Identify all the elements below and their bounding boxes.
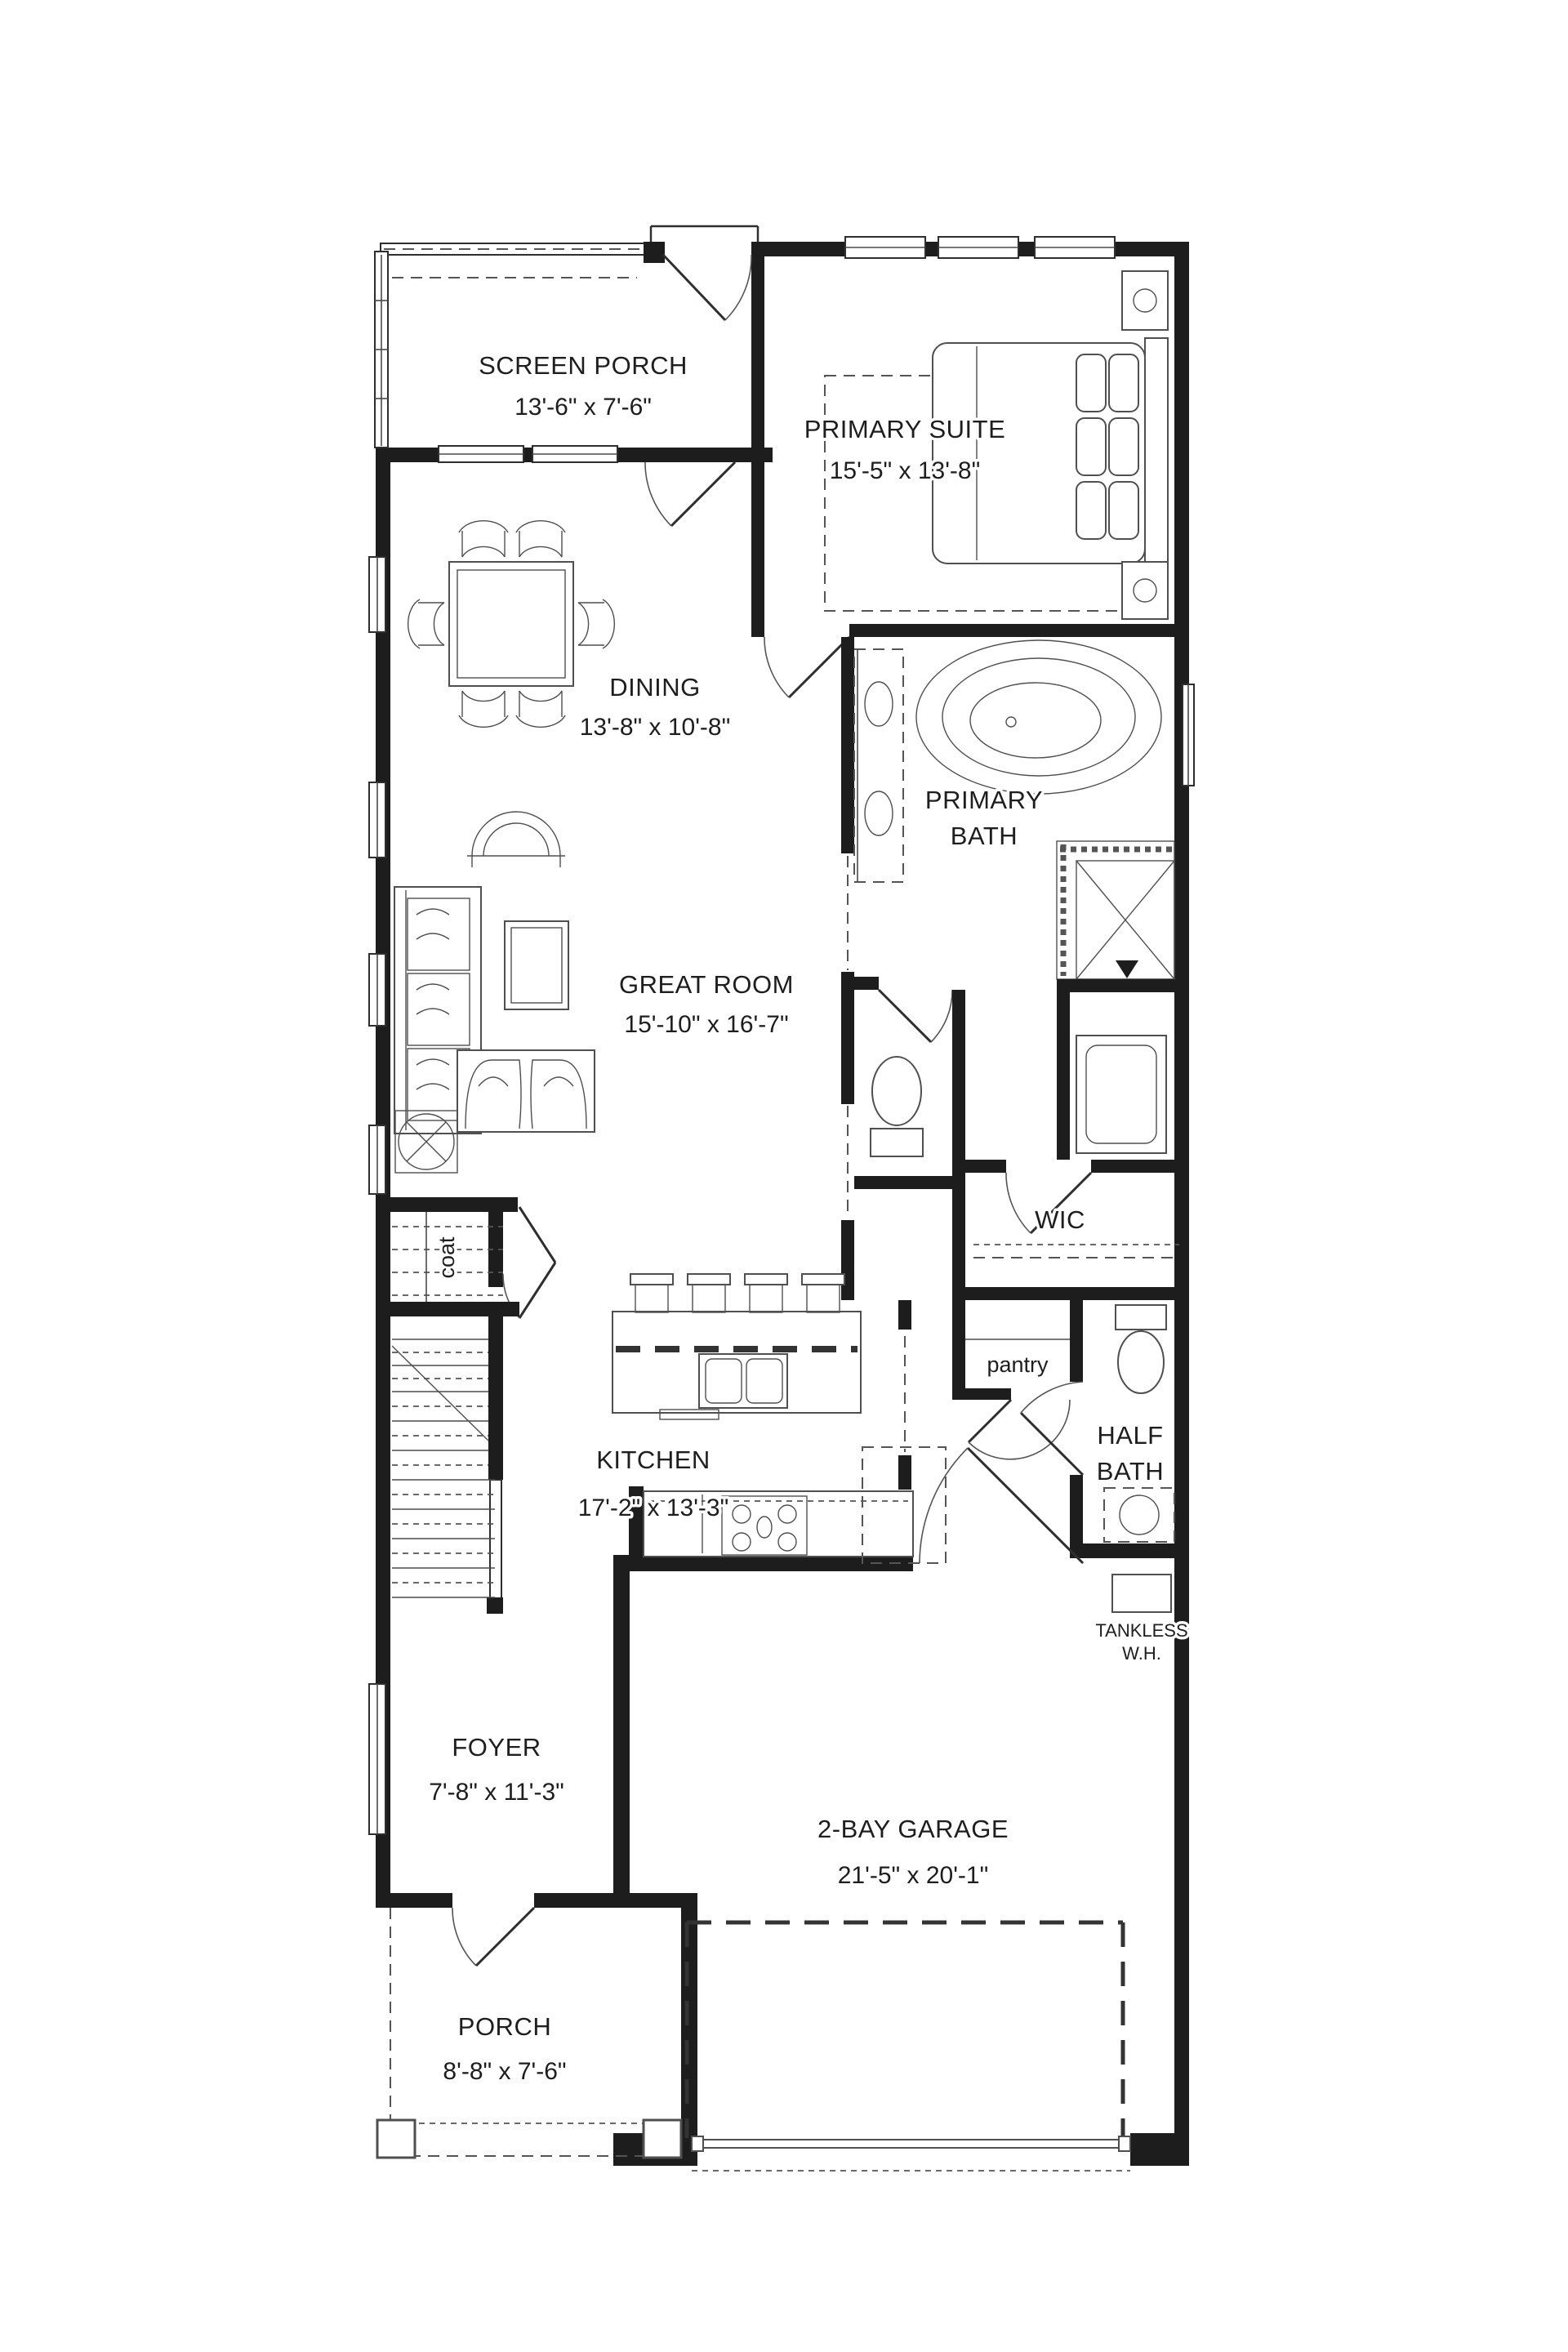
garage-label: 2-BAY GARAGE: [817, 1815, 1009, 1843]
bench-nook: [1057, 979, 1174, 1160]
screen-porch-door: [663, 255, 751, 320]
great-room-furniture: [394, 812, 595, 1173]
tankless-label-2: W.H.: [1122, 1643, 1161, 1664]
kitchen-island: [612, 1274, 861, 1419]
screen-porch-dims: 13'-6" x 7'-6": [514, 394, 652, 421]
garage-structure: [687, 1922, 1130, 2171]
tankless-label-1: TANKLESS: [1095, 1620, 1187, 1641]
half-bath-label-2: BATH: [1097, 1457, 1164, 1486]
great-room-label: GREAT ROOM: [619, 970, 794, 999]
floor-plan-drawing: SCREEN PORCH 13'-6" x 7'-6" PRIMARY SUIT…: [0, 0, 1568, 2352]
screen-porch-label: SCREEN PORCH: [479, 351, 688, 380]
staircase: [376, 1302, 519, 1614]
pantry-label: pantry: [987, 1352, 1049, 1377]
dining-dims: 13'-8" x 10'-8": [580, 714, 731, 741]
foyer-label: FOYER: [452, 1733, 541, 1762]
garage-dims: 21'-5" x 20'-1": [838, 1862, 989, 1889]
dining-table-set: [408, 521, 615, 728]
primary-suite-furniture: [825, 271, 1168, 619]
foyer-dims: 7'-8" x 11'-3": [429, 1779, 564, 1806]
floor-plan-page: SCREEN PORCH 13'-6" x 7'-6" PRIMARY SUIT…: [0, 0, 1568, 2352]
great-room-right-wall: [841, 637, 854, 1300]
coat-closet: [376, 1197, 555, 1318]
primary-suite-dims: 15'-5" x 13'-8": [830, 457, 981, 484]
front-door: [452, 1908, 534, 1966]
wic-label: WIC: [1035, 1205, 1085, 1234]
half-bath-label-1: HALF: [1097, 1421, 1163, 1450]
tankless-water-heater: [1112, 1575, 1171, 1612]
great-room-dims: 15'-10" x 16'-7": [624, 1011, 788, 1038]
primary-suite-windows: [845, 237, 1115, 258]
porch-dims: 8'-8" x 7'-6": [443, 2058, 566, 2085]
dining-label: DINING: [609, 673, 701, 702]
porch-to-dining-door: [645, 462, 735, 526]
roof-stub-lines: [651, 226, 758, 245]
coat-label: coat: [434, 1236, 459, 1279]
water-closet: [854, 977, 965, 1400]
kitchen-label: KITCHEN: [596, 1445, 710, 1474]
primary-suite-label: PRIMARY SUITE: [804, 415, 1006, 443]
kitchen-dims: 17'-2" x 13'-3": [578, 1494, 729, 1521]
porch-label: PORCH: [458, 2012, 551, 2041]
primary-bath-label-2: BATH: [951, 822, 1018, 850]
suite-vestibule-door: [764, 637, 849, 697]
primary-bath-label-1: PRIMARY: [925, 786, 1043, 814]
